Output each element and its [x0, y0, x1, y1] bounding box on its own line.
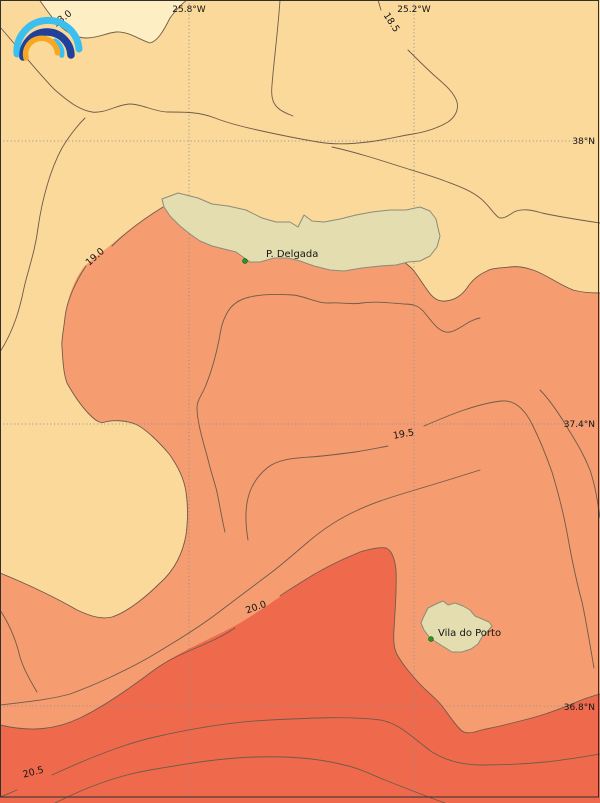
latitude-label-37-4n: 37.4°N [564, 420, 595, 430]
place-label-vila-do-porto: Vila do Porto [438, 628, 501, 639]
sst-contour-map: 18.0 18.5 19.0 19.5 20.0 20.5 P. Delgada… [0, 0, 600, 803]
longitude-label-25-8w: 25.8°W [172, 5, 206, 15]
place-marker-vila-do-porto [429, 637, 434, 642]
longitude-label-25-2w: 25.2°W [397, 5, 431, 15]
place-marker-p-delgada [243, 259, 248, 264]
latitude-label-36-8n: 36.8°N [564, 703, 595, 713]
map-canvas: 18.0 18.5 19.0 19.5 20.0 20.5 P. Delgada… [0, 0, 600, 803]
latitude-label-38n: 38°N [572, 137, 595, 147]
place-label-p-delgada: P. Delgada [266, 249, 318, 260]
